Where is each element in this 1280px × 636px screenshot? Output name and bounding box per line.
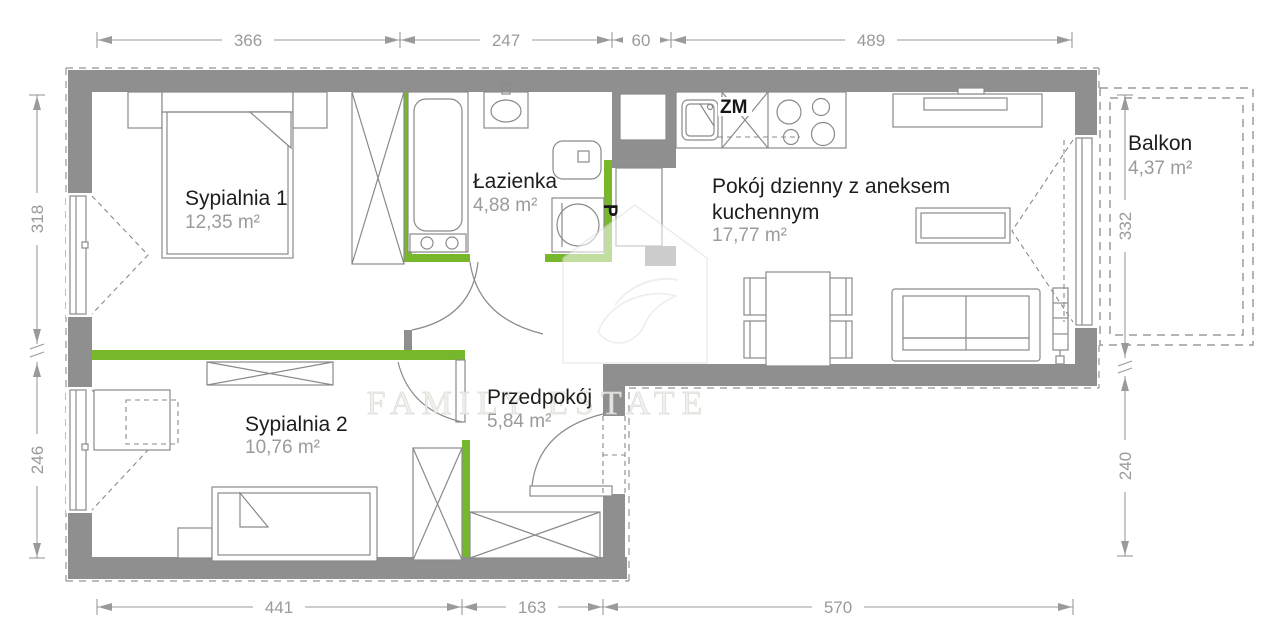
- nightstand: [178, 528, 212, 558]
- dim-right-2: 240: [1116, 452, 1135, 480]
- label-living-name-line2: kuchennym: [712, 201, 819, 224]
- dim-left-2: 246: [28, 446, 47, 474]
- label-washing-machine: P: [599, 204, 620, 217]
- label-balcony-area: 4,37 m²: [1128, 158, 1192, 179]
- label-bedroom2-area: 10,76 m²: [245, 437, 320, 458]
- dim-top-4: 489: [857, 31, 885, 50]
- dimensions-top: 366 247 60 489: [97, 31, 1072, 50]
- hob-burner: [813, 99, 830, 116]
- dim-bottom-1: 441: [265, 598, 293, 617]
- toilet: [553, 141, 601, 179]
- wall-right-upper: [1075, 70, 1097, 135]
- bedroom1-door-swing: [412, 262, 478, 330]
- hob-burner: [777, 100, 801, 124]
- bathroom-door-swing: [470, 262, 543, 334]
- bedroom1-furniture: [128, 92, 404, 264]
- dim-bottom-3: 570: [824, 598, 852, 617]
- window-bedroom1-swing: [92, 196, 148, 314]
- label-living-name-line1: Pokój dzienny z aneksem: [712, 175, 950, 198]
- wall-stub-bedroom1-door: [404, 330, 412, 352]
- dim-left-1: 318: [28, 205, 47, 233]
- wall-hall-right-b: [603, 494, 625, 579]
- dim-bottom-2: 163: [518, 598, 546, 617]
- nightstand: [128, 92, 162, 128]
- dimensions-left: 318 246: [28, 95, 47, 558]
- dining-table: [766, 272, 830, 366]
- floor-plan-canvas: FAMILY ESTATE 366 247 60 489 441: [0, 0, 1280, 636]
- hob-burner: [812, 123, 835, 146]
- single-bed: [212, 487, 377, 561]
- label-bedroom1-name: Sypialnia 1: [185, 187, 288, 210]
- radiator: [1053, 288, 1068, 350]
- label-bedroom2-name: Sypialnia 2: [245, 413, 348, 436]
- label-bedroom1-area: 12,35 m²: [185, 212, 260, 233]
- dimensions-bottom: 441 163 570: [97, 598, 1073, 617]
- desk: [94, 390, 170, 450]
- dim-top-3: 60: [632, 31, 651, 50]
- label-living-area: 17,77 m²: [712, 225, 787, 246]
- floor-plan-drawing: FAMILY ESTATE 366 247 60 489 441: [0, 0, 1280, 636]
- entrance-door-leaf: [530, 486, 612, 496]
- label-bathroom-name: Łazienka: [473, 170, 557, 193]
- dim-right-1: 332: [1116, 212, 1135, 240]
- label-hall-area: 5,84 m²: [487, 411, 551, 432]
- label-bathroom-area: 4,88 m²: [473, 195, 537, 216]
- bathtub: [408, 92, 468, 252]
- label-balcony-name: Balkon: [1128, 132, 1192, 155]
- label-hall-name: Przedpokój: [487, 386, 592, 409]
- bathroom-fixtures: [408, 84, 604, 252]
- dim-top-2: 247: [492, 31, 520, 50]
- dim-top-1: 366: [234, 31, 262, 50]
- wall-top: [68, 70, 1097, 92]
- label-dishwasher: ZM: [720, 97, 747, 118]
- wall-living-bottom: [603, 364, 1097, 386]
- nightstand: [293, 92, 327, 128]
